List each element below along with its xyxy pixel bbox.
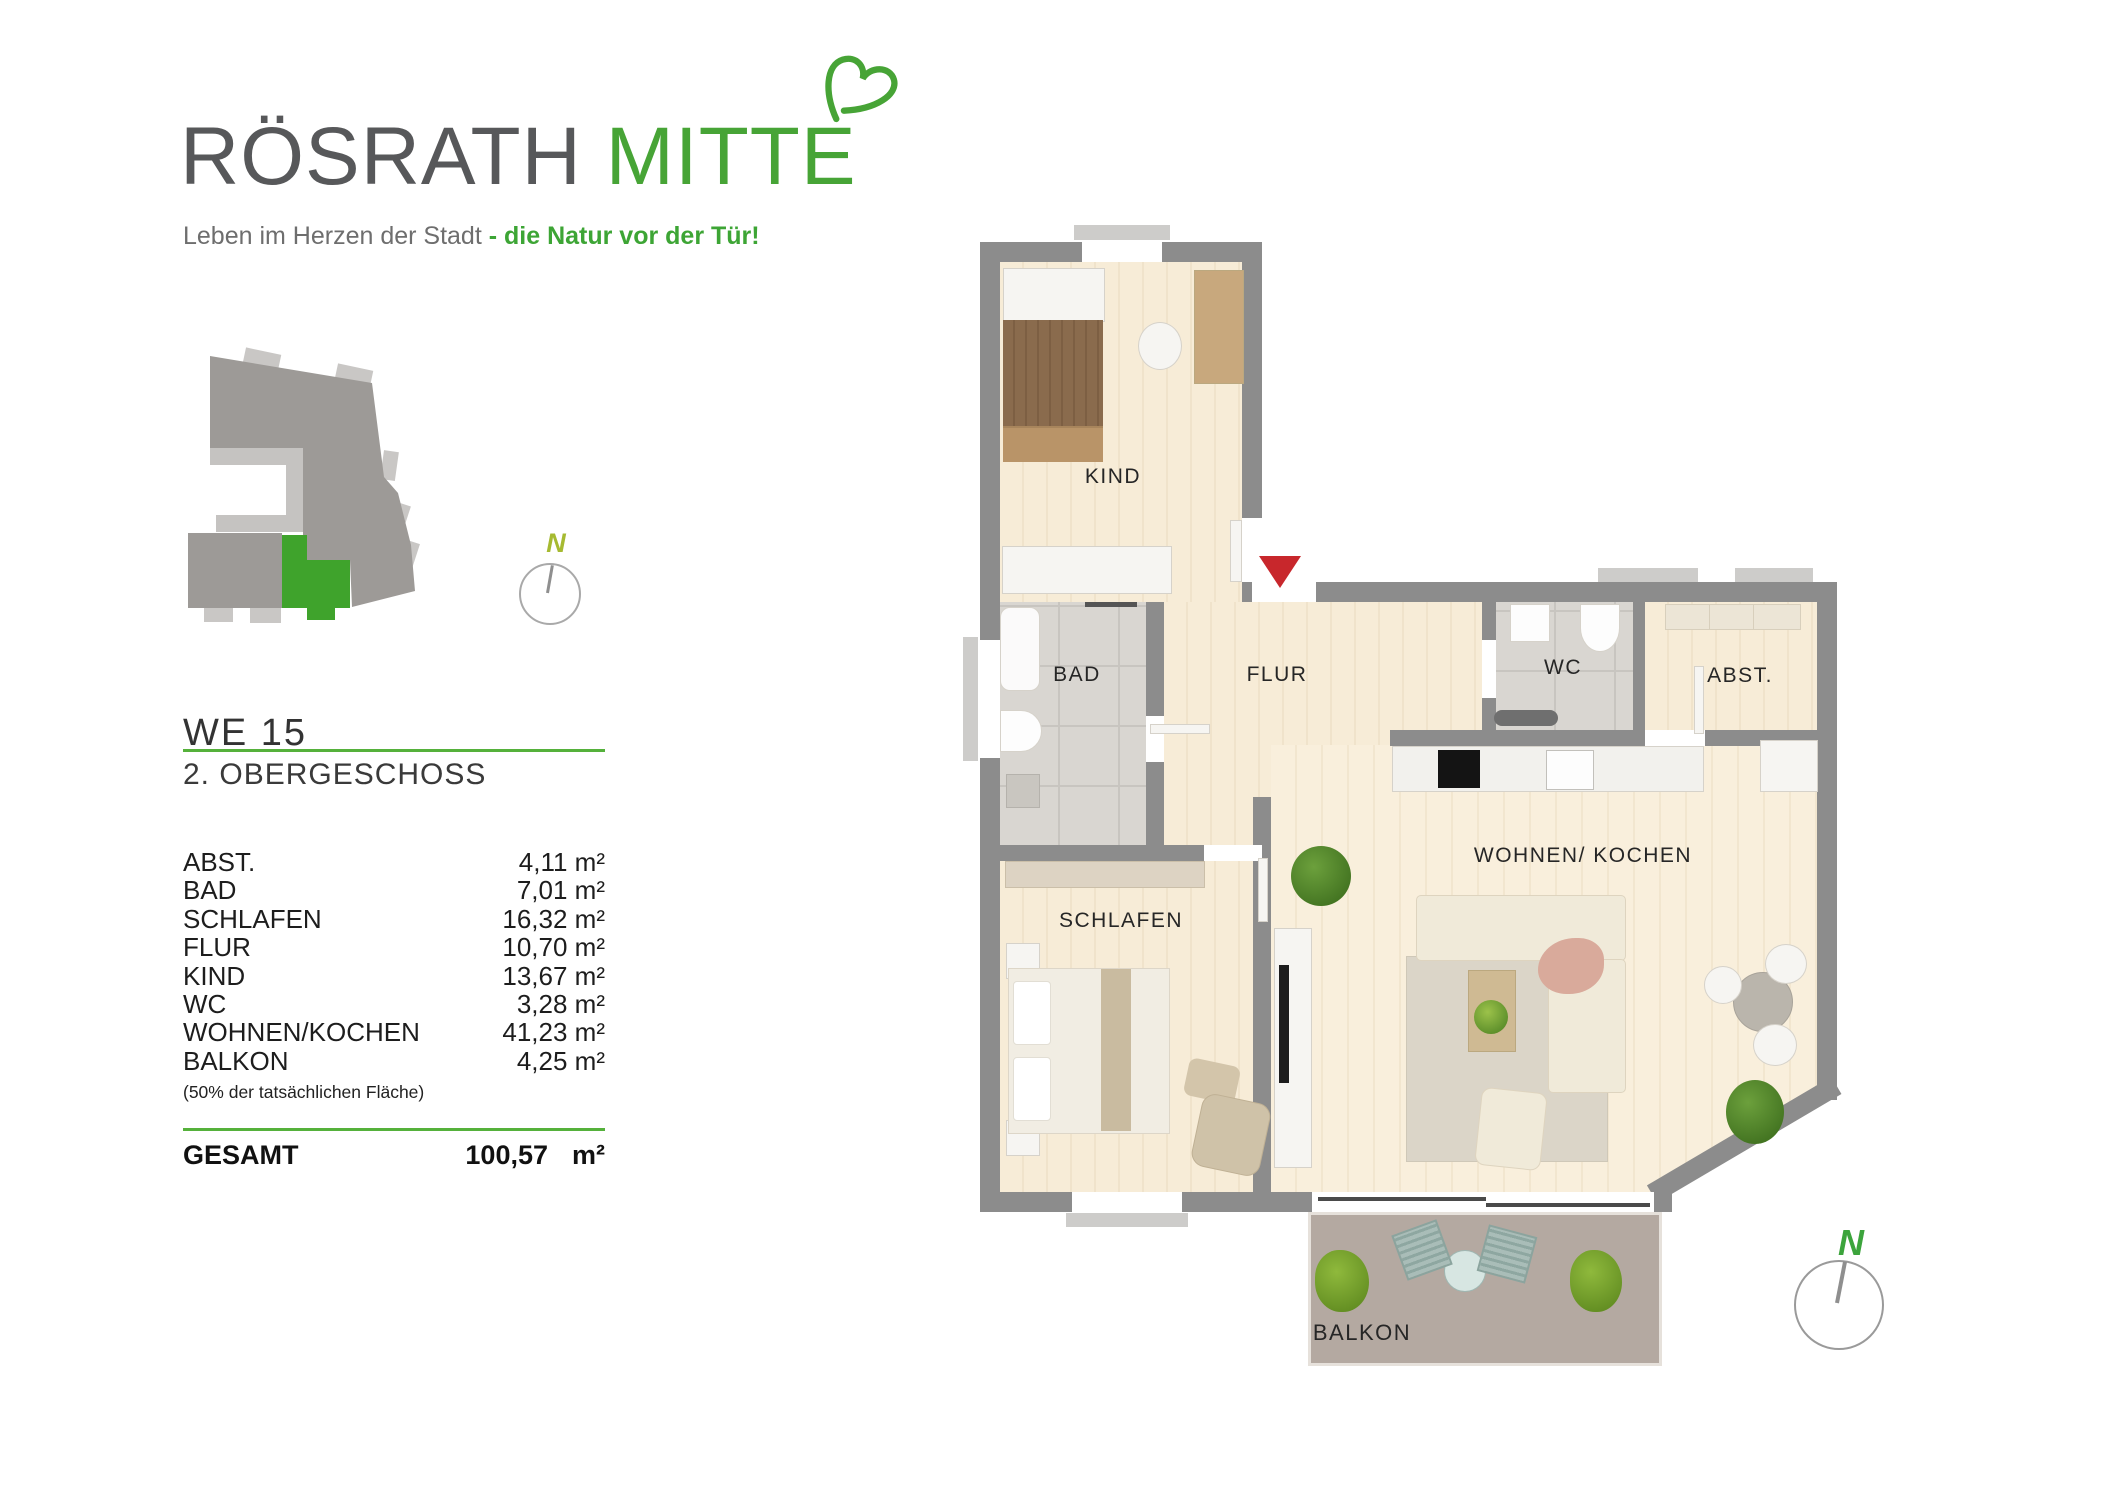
room-label-balkon: BALKON: [1313, 1320, 1411, 1346]
table-plant-icon: [1474, 1000, 1508, 1034]
balcony-bush-icon: [1315, 1250, 1369, 1312]
armchair-wohnen: [1474, 1087, 1548, 1171]
door-leaf: [1230, 520, 1242, 582]
room-label-schlafen: SCHLAFEN: [1059, 909, 1183, 933]
window-sill: [1074, 225, 1170, 240]
sink-wc: [1510, 604, 1550, 642]
unit-divider: [183, 749, 605, 752]
kitchen-sink: [1546, 750, 1594, 790]
wall: [1242, 582, 1837, 602]
table-row: BAD 7,01 m²: [183, 876, 605, 904]
window-bad: [980, 640, 1000, 758]
room-label: WOHNEN/KOCHEN: [183, 1018, 420, 1046]
wall: [980, 242, 1000, 858]
room-area: 16,32 m²: [502, 905, 605, 933]
desk-kind: [1194, 270, 1244, 384]
table-row: FLUR 10,70 m²: [183, 933, 605, 961]
balcony-bush-icon: [1570, 1250, 1622, 1312]
plant-icon: [1726, 1080, 1784, 1144]
room-label: WC: [183, 990, 226, 1018]
door-wc-opening: [1482, 640, 1496, 698]
window-sill: [1066, 1213, 1188, 1227]
room-label: FLUR: [183, 933, 251, 961]
table-row: KIND 13,67 m²: [183, 962, 605, 990]
room-label-bad: BAD: [1053, 663, 1101, 687]
total-row: GESAMT 100,57 m²: [183, 1140, 605, 1171]
compass-bottom-circle: [1794, 1260, 1884, 1350]
site-plan: [140, 345, 440, 635]
room-label-wc: WC: [1544, 656, 1582, 680]
logo-text-gray: RÖSRATH: [180, 111, 582, 202]
window-sill: [1735, 568, 1813, 582]
toilet-bad: [1000, 710, 1042, 752]
room-area: 7,01 m²: [517, 876, 605, 904]
room-label: BAD: [183, 876, 236, 904]
bed-runner: [1101, 969, 1131, 1131]
table-row: WOHNEN/KOCHEN 41,23 m²: [183, 1018, 605, 1046]
compass-top-n: N: [546, 528, 566, 559]
window-sill: [963, 637, 978, 761]
tagline-green: - die Natur vor der Tür!: [489, 222, 760, 250]
table-row: BALKON 4,25 m²: [183, 1047, 605, 1075]
toilet-wc: [1580, 604, 1620, 652]
wall: [980, 845, 1206, 861]
chair-kind: [1138, 322, 1182, 370]
table-row: SCHLAFEN 16,32 m²: [183, 905, 605, 933]
door-leaf: [1694, 666, 1704, 734]
room-area: 4,11 m²: [519, 848, 605, 876]
bed-pillows-kind: [1003, 268, 1105, 322]
room-area: 13,67 m²: [502, 962, 605, 990]
door-bad-opening: [1146, 716, 1164, 762]
room-area: 3,28 m²: [517, 990, 605, 1018]
room-label-flur: FLUR: [1247, 663, 1308, 687]
dining-chair: [1753, 1024, 1797, 1066]
door-schlafen-opening: [1204, 845, 1262, 861]
wall: [980, 858, 1000, 1212]
area-table: ABST. 4,11 m² BAD 7,01 m² SCHLAFEN 16,32…: [183, 848, 605, 1103]
total-divider: [183, 1128, 605, 1131]
stove: [1438, 750, 1480, 788]
tagline: Leben im Herzen der Stadt - die Natur vo…: [183, 222, 760, 251]
wardrobe-schlafen: [1005, 861, 1205, 888]
table-row: WC 3,28 m²: [183, 990, 605, 1018]
balkon-note: (50% der tatsächlichen Fläche): [183, 1082, 605, 1103]
door-leaf: [1150, 724, 1210, 734]
pillow: [1013, 981, 1051, 1045]
entrance-arrow-icon: [1259, 556, 1301, 588]
room-label: SCHLAFEN: [183, 905, 322, 933]
dining-chair: [1765, 944, 1807, 984]
tv: [1279, 965, 1289, 1083]
window-kind: [1082, 242, 1162, 262]
total-unit: m²: [572, 1140, 605, 1171]
floorplan-page: RÖSRATH MITTE Leben im Herzen der Stadt …: [0, 0, 2105, 1488]
room-label-wohnen: WOHNEN/ KOCHEN: [1474, 844, 1692, 868]
wall: [1817, 582, 1837, 1100]
mat-wc: [1494, 710, 1558, 726]
room-area: 10,70 m²: [502, 933, 605, 961]
room-area: 41,23 m²: [502, 1018, 605, 1046]
balcony-door-opening: [1312, 1192, 1654, 1212]
window-sill: [1598, 568, 1698, 582]
wardrobe-kind: [1002, 546, 1172, 594]
bathtub: [1000, 607, 1040, 691]
shower-drain: [1006, 774, 1040, 808]
room-area: 4,25 m²: [517, 1047, 605, 1075]
pillow: [1013, 1057, 1051, 1121]
bed-foot-kind: [1003, 426, 1103, 462]
bed-schlafen: [1008, 968, 1170, 1134]
room-label: KIND: [183, 962, 245, 990]
compass-bottom-n: N: [1838, 1222, 1864, 1264]
total-value: 100,57: [465, 1140, 548, 1171]
fridge-cabinet: [1760, 740, 1818, 792]
towel-rail: [1085, 602, 1137, 607]
table-row: ABST. 4,11 m²: [183, 848, 605, 876]
balcony-sliding-door: [1486, 1203, 1650, 1207]
wall: [1633, 602, 1645, 732]
bed-kind: [1003, 320, 1103, 426]
logo: RÖSRATH MITTE: [180, 116, 857, 198]
unit-floor: 2. OBERGESCHOSS: [183, 758, 486, 792]
room-label: ABST.: [183, 848, 255, 876]
shelf-abst: [1665, 604, 1801, 630]
dining-chair: [1704, 966, 1742, 1004]
room-label-kind: KIND: [1085, 465, 1141, 489]
balcony-sliding-door: [1318, 1197, 1486, 1201]
plant-icon: [1291, 846, 1351, 906]
tagline-gray: Leben im Herzen der Stadt: [183, 222, 489, 250]
window-schlafen: [1072, 1192, 1182, 1212]
total-label: GESAMT: [183, 1140, 299, 1171]
room-label: BALKON: [183, 1047, 289, 1075]
door-leaf: [1258, 858, 1268, 922]
room-label-abst: ABST.: [1707, 664, 1773, 688]
